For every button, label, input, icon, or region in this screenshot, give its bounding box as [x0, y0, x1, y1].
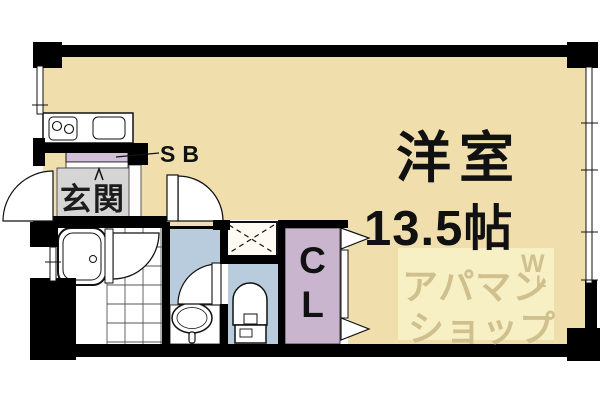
watermark-line2: ショップ: [408, 300, 556, 352]
toilet-icon: [233, 283, 267, 343]
bathroom-window: [50, 247, 56, 281]
left-window: [37, 66, 43, 114]
closet-label-l: L: [285, 286, 340, 330]
bathtub-icon: [58, 228, 106, 285]
washing-machine-space: [226, 222, 277, 256]
main-room-label: 洋室: [396, 131, 522, 186]
floor-plan: 洋室 13.5帖 玄関 SB C L アパマン ショップ W L: [0, 0, 600, 400]
kitchen-sink-icon: [93, 117, 125, 139]
entrance-step: [129, 165, 141, 218]
bathroom-door-leaf: [105, 229, 113, 283]
toilet-door-leaf: [212, 263, 221, 305]
shoe-box-front: [66, 162, 128, 168]
entrance-door-arc: [3, 171, 53, 221]
right-window: [586, 67, 592, 283]
entrance-label: 玄関: [60, 184, 126, 215]
closet-label: C L: [285, 242, 340, 330]
room-size-label: 13.5帖: [364, 205, 513, 254]
watermark-logo-l: L: [536, 272, 546, 292]
closet-label-c: C: [285, 242, 340, 286]
kitchen-counter: [43, 113, 133, 143]
shoe-box-label: SB: [160, 143, 206, 166]
washroom-door-leaf: [167, 175, 178, 221]
